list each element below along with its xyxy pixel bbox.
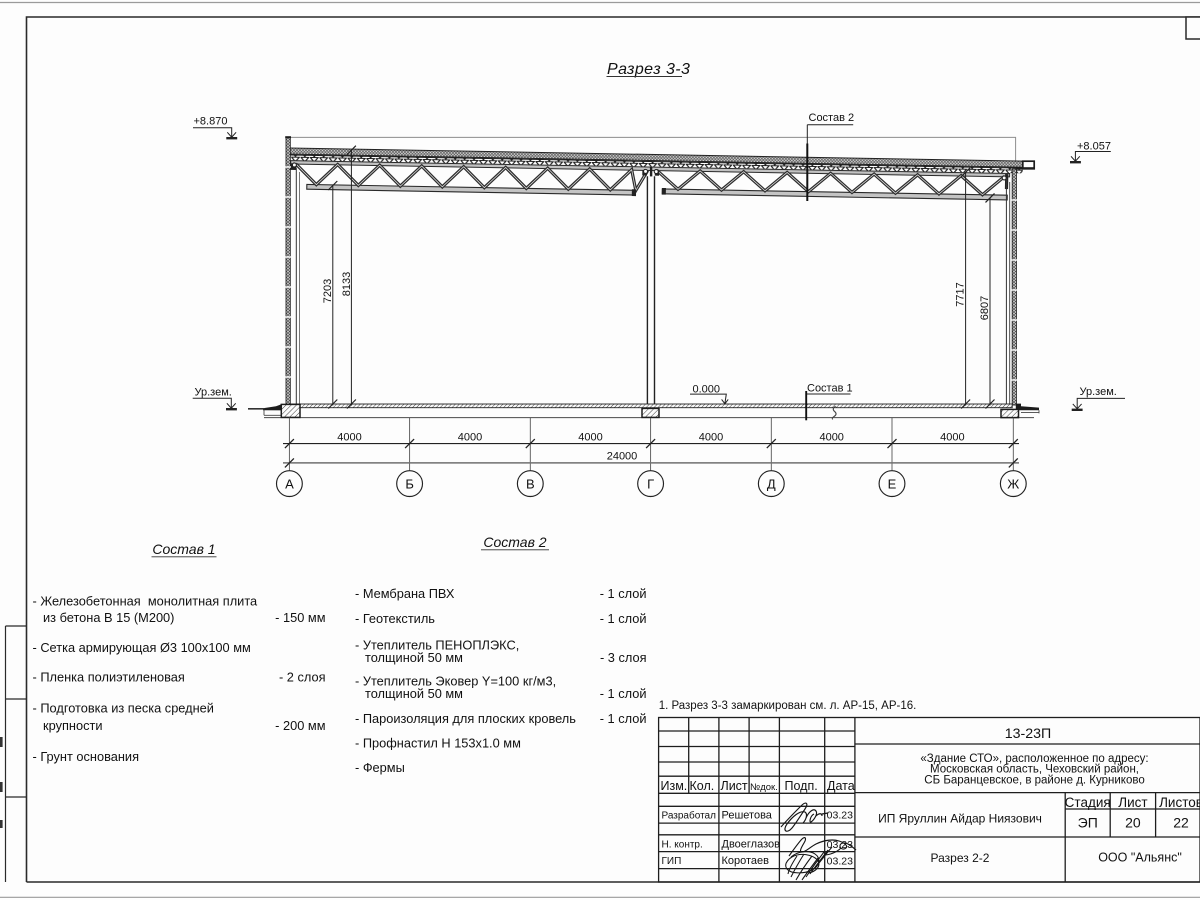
svg-text:Состав 2: Состав 2	[809, 112, 855, 124]
svg-text:- 3 слоя: - 3 слоя	[600, 650, 647, 665]
svg-text:- 1 слой: - 1 слой	[600, 711, 647, 726]
svg-text:толщиной 50 мм: толщиной 50 мм	[365, 650, 463, 665]
svg-text:Лист: Лист	[1118, 795, 1147, 810]
svg-text:1. Разрез 3-3 замаркирован см.: 1. Разрез 3-3 замаркирован см. л. АР-15,…	[659, 700, 917, 712]
svg-text:+8.870: +8.870	[194, 116, 228, 128]
svg-text:03.23: 03.23	[827, 810, 853, 822]
svg-text:Дата: Дата	[827, 779, 855, 793]
svg-text:крупности: крупности	[43, 718, 103, 733]
svg-text:4000: 4000	[940, 431, 964, 443]
svg-text:Ур.зем.: Ур.зем.	[195, 386, 232, 398]
svg-text:8133: 8133	[341, 272, 353, 296]
svg-text:- 200 мм: - 200 мм	[275, 718, 325, 733]
svg-text:- Подготовка из песка средней: - Подготовка из песка средней	[33, 701, 214, 716]
svg-text:толщиной 50 мм: толщиной 50 мм	[365, 686, 463, 701]
svg-text:Коротаев: Коротаев	[722, 855, 770, 867]
svg-text:24000: 24000	[607, 451, 638, 463]
svg-text:Состав 2: Состав 2	[483, 534, 546, 550]
svg-text:Состав 1: Состав 1	[807, 383, 853, 395]
svg-text:- Фермы: - Фермы	[355, 760, 405, 775]
svg-text:Д: Д	[767, 476, 776, 491]
svg-text:Лист: Лист	[721, 779, 748, 793]
svg-text:- Профнастил Н 153х1.0 мм: - Профнастил Н 153х1.0 мм	[355, 736, 521, 751]
svg-text:№док.: №док.	[750, 782, 778, 793]
svg-text:ООО "Альянс": ООО "Альянс"	[1098, 851, 1182, 865]
svg-text:- 150 мм: - 150 мм	[275, 610, 325, 625]
svg-text:Подп.: Подп.	[785, 779, 818, 793]
svg-text:03.23: 03.23	[827, 855, 853, 867]
svg-text:Двоеглазов: Двоеглазов	[722, 839, 781, 851]
svg-text:- Мембрана ПВХ: - Мембрана ПВХ	[355, 586, 455, 601]
svg-text:- 2 слоя: - 2 слоя	[279, 670, 326, 685]
svg-text:Московская область, Чеховский: Московская область, Чеховский район,	[930, 763, 1139, 775]
svg-text:А: А	[285, 476, 294, 491]
svg-text:Ж: Ж	[1007, 476, 1019, 491]
svg-text:Разрез 3-3: Разрез 3-3	[607, 61, 690, 78]
svg-text:4000: 4000	[699, 431, 723, 443]
svg-text:7717: 7717	[955, 282, 967, 306]
svg-text:Кол.: Кол.	[690, 779, 715, 793]
svg-text:Е: Е	[888, 476, 897, 491]
svg-text:4000: 4000	[337, 431, 361, 443]
svg-text:СБ Баранцевское, в районе д. К: СБ Баранцевское, в районе д. Курниково	[924, 775, 1144, 787]
svg-text:В: В	[526, 476, 535, 491]
svg-text:- Пароизоляция для плоских кро: - Пароизоляция для плоских кровель	[355, 711, 576, 726]
svg-text:Изм.: Изм.	[661, 779, 688, 793]
svg-text:ГИП: ГИП	[662, 856, 682, 867]
svg-text:Ур.зем.: Ур.зем.	[1080, 386, 1117, 398]
svg-text:6807: 6807	[979, 296, 991, 320]
svg-text:Листов: Листов	[1159, 795, 1200, 810]
svg-text:13-23П: 13-23П	[1005, 726, 1051, 742]
svg-text:- Геотекстиль: - Геотекстиль	[355, 611, 435, 626]
svg-text:- Сетка армирующая Ø3 100х100: - Сетка армирующая Ø3 100х100 мм	[33, 640, 251, 655]
svg-text:из бетона В 15 (М200): из бетона В 15 (М200)	[43, 610, 174, 625]
svg-text:7203: 7203	[322, 279, 334, 303]
svg-text:4000: 4000	[819, 431, 843, 443]
svg-text:- 1 слой: - 1 слой	[600, 686, 647, 701]
svg-text:Б: Б	[405, 476, 414, 491]
svg-text:+8.057: +8.057	[1077, 140, 1111, 152]
svg-text:22: 22	[1173, 815, 1189, 831]
svg-text:- 1 слой: - 1 слой	[600, 611, 647, 626]
svg-text:- Пленка полиэтиленовая: - Пленка полиэтиленовая	[33, 670, 185, 685]
svg-text:Н. контр.: Н. контр.	[662, 840, 703, 851]
svg-text:Состав 1: Состав 1	[152, 541, 215, 557]
svg-text:Разработал: Разработал	[662, 810, 717, 822]
svg-text:Г: Г	[647, 476, 654, 491]
svg-text:ИП Яруллин Айдар Ниязович: ИП Яруллин Айдар Ниязович	[878, 812, 1042, 826]
svg-text:Стадия: Стадия	[1065, 795, 1111, 810]
svg-text:- Железобетонная монолитная п: - Железобетонная монолитная плита	[33, 593, 259, 608]
svg-text:4000: 4000	[578, 431, 602, 443]
svg-text:4000: 4000	[458, 431, 482, 443]
svg-text:ЭП: ЭП	[1078, 815, 1098, 831]
svg-text:Разрез 2-2: Разрез 2-2	[931, 851, 990, 865]
svg-text:Решетова: Решетова	[722, 810, 773, 822]
svg-text:- Грунт основания: - Грунт основания	[33, 749, 140, 764]
svg-text:- 1 слой: - 1 слой	[600, 586, 647, 601]
svg-text:20: 20	[1125, 815, 1141, 831]
